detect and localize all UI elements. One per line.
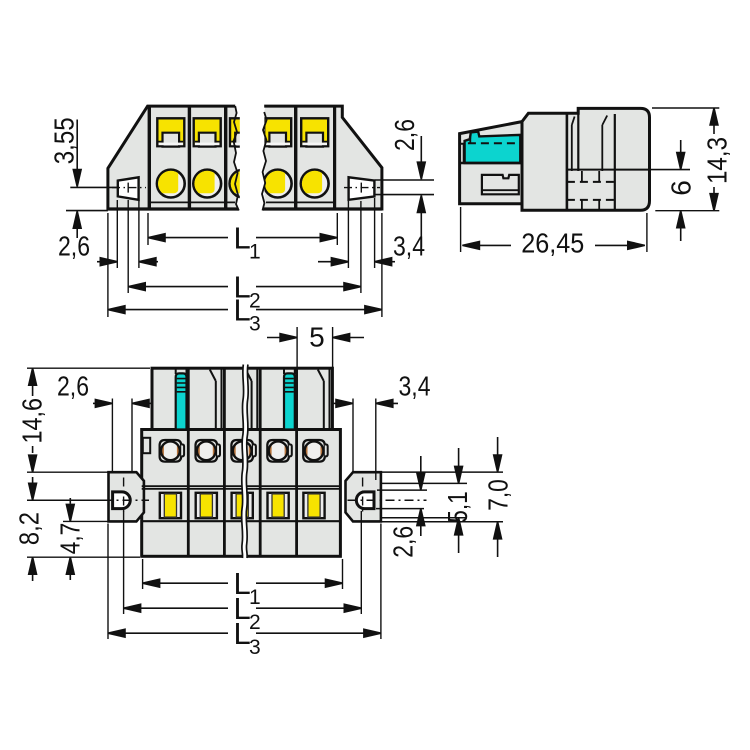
svg-text:3,55: 3,55 — [49, 117, 80, 164]
svg-text:2: 2 — [249, 611, 261, 634]
svg-text:3,4: 3,4 — [399, 371, 431, 402]
svg-text:6: 6 — [666, 180, 697, 196]
svg-text:2: 2 — [249, 290, 261, 313]
svg-text:5: 5 — [309, 322, 325, 353]
svg-text:3,4: 3,4 — [393, 231, 425, 262]
svg-text:26,45: 26,45 — [521, 228, 584, 259]
svg-text:2,6: 2,6 — [58, 231, 90, 262]
svg-text:7,0: 7,0 — [483, 479, 514, 511]
svg-text:2,6: 2,6 — [388, 526, 419, 558]
svg-text:14,3: 14,3 — [702, 137, 733, 184]
svg-text:2,6: 2,6 — [389, 119, 420, 151]
svg-text:3: 3 — [249, 636, 261, 659]
svg-text:14,6: 14,6 — [17, 398, 48, 444]
svg-text:5,1: 5,1 — [442, 491, 473, 523]
svg-text:3: 3 — [249, 313, 261, 336]
svg-text:8,2: 8,2 — [14, 512, 45, 545]
svg-text:2,6: 2,6 — [57, 371, 89, 402]
svg-text:1: 1 — [249, 241, 261, 264]
svg-text:1: 1 — [249, 586, 261, 609]
svg-text:4,7: 4,7 — [55, 523, 86, 555]
